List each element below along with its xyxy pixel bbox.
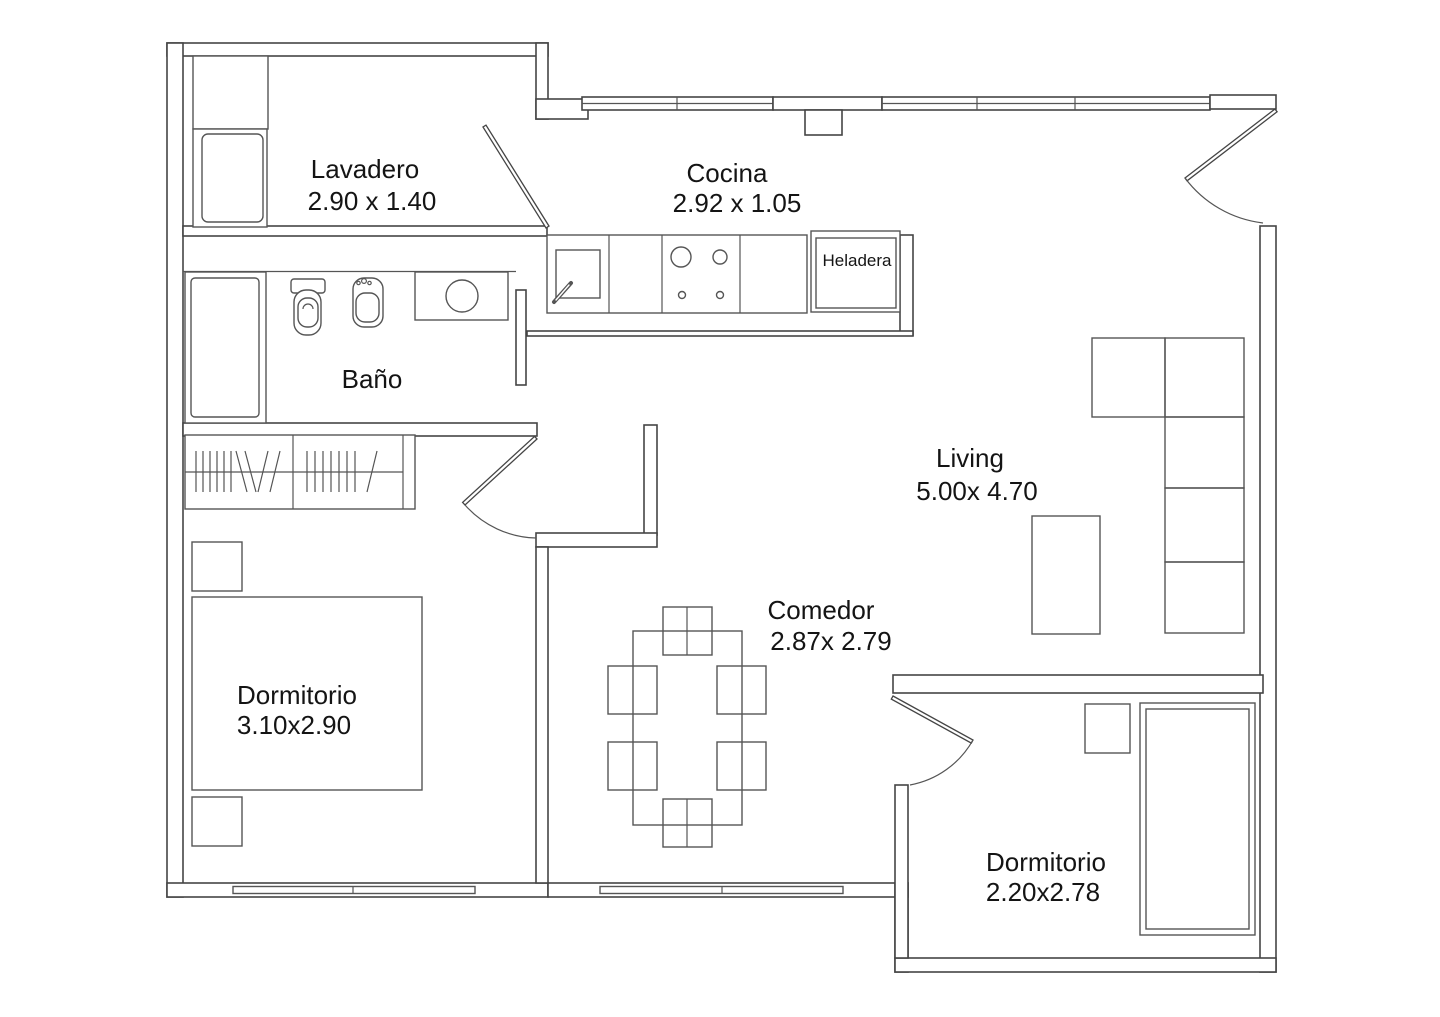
bedroom2-door-swing [910,740,973,785]
coffee-table [1032,516,1100,634]
bedroom-door-swing [465,505,536,538]
sofa-section [1165,338,1244,417]
room-label-dormitorio2: Dormitorio [986,847,1106,877]
window [233,887,475,894]
bed [1140,703,1255,935]
room-dims-comedor: 2.87x 2.79 [770,626,891,656]
wall [895,785,908,958]
wall [893,675,1263,693]
living [1032,109,1277,634]
nightstand [192,797,242,846]
room-dims-dormitorio1: 3.10x2.90 [237,710,351,740]
wall [773,97,882,110]
wall [900,235,913,335]
wall [895,958,1276,972]
counter-front-wall [527,331,913,336]
room-label-dormitorio1: Dormitorio [237,680,357,710]
nightstand [192,542,242,591]
bedroom-door-leaf [463,436,537,505]
lavadero-door-leaf [483,125,549,228]
column [805,110,842,135]
wall [536,547,548,883]
floor-plan-page: Heladera [0,0,1440,1017]
washing-machine [193,56,268,129]
wall [1210,95,1276,109]
room-dims-lavadero: 2.90 x 1.40 [308,186,437,216]
sofa-section [1165,488,1244,562]
closet [185,435,415,509]
wall [1260,226,1276,972]
bedroom2-door-leaf [891,696,973,743]
room-label-bano: Baño [342,364,403,394]
room-dims-cocina: 2.92 x 1.05 [673,188,802,218]
entry-door-leaf [1185,109,1277,181]
bathroom-door-panel [516,290,526,385]
dining-table [633,631,742,825]
fridge-label: Heladera [823,251,893,270]
bano [183,272,516,424]
floor-plan-canvas: Heladera [0,0,1440,1017]
sofa-section [1165,562,1244,633]
cocina: Heladera [547,231,900,313]
room-label-cocina: Cocina [687,158,768,188]
wall [644,425,657,535]
wall [167,43,548,56]
sofa-section [1165,417,1244,488]
comedor [608,607,766,847]
entry-door-swing [1185,178,1263,223]
laundry-tub [193,129,267,227]
wall [536,99,588,119]
kitchen-counter [547,235,807,313]
wall [183,423,537,436]
room-label-living: Living [936,443,1004,473]
room-dims-living: 5.00x 4.70 [916,476,1037,506]
room-label-comedor: Comedor [768,595,875,625]
fridge [811,231,900,312]
vanity [415,272,508,320]
sofa-section [1092,338,1165,417]
bathtub [185,272,266,423]
room-label-lavadero: Lavadero [311,154,419,184]
wall [536,533,657,547]
wall [167,43,183,897]
room-dims-dormitorio2: 2.20x2.78 [986,877,1100,907]
nightstand [1085,704,1130,753]
